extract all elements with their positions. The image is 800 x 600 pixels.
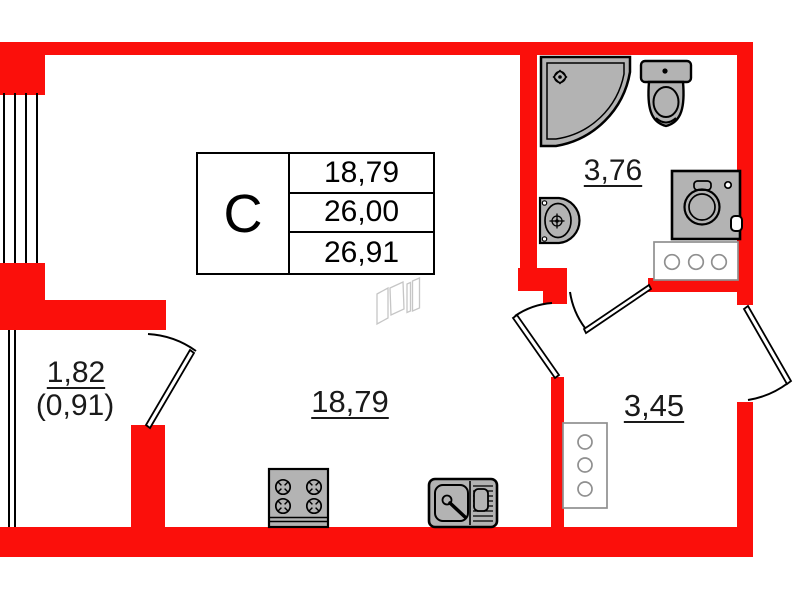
balcony-reduced-area-label: (0,91) <box>22 390 128 422</box>
flush-button <box>662 68 667 73</box>
stove <box>269 469 328 527</box>
wall-bathroom-left <box>520 55 537 270</box>
bathroom-door <box>570 285 651 333</box>
wall-top-left-block <box>0 42 45 95</box>
entrance-door <box>744 306 791 400</box>
door-leaf <box>513 315 559 378</box>
basin-screw <box>542 201 546 205</box>
door-swing-arc <box>515 303 552 316</box>
hallway-area-label: 3,45 <box>610 390 698 423</box>
unit-type-label: С <box>198 154 290 273</box>
door-leaf <box>744 306 791 384</box>
washer-counter <box>654 242 738 280</box>
unit-area-value: 26,00 <box>290 194 433 234</box>
door-leaf <box>584 285 651 333</box>
door-swing-arc <box>148 334 196 351</box>
washer-button <box>725 182 731 188</box>
wall-bathroom-jamb <box>518 268 567 291</box>
shower-tray <box>541 57 630 146</box>
washer-handle <box>731 216 742 231</box>
wall-bottom <box>0 527 753 557</box>
wall-bathroom-jamb-tab <box>543 291 567 304</box>
door-swing-arc <box>570 292 585 328</box>
floor-plan-drawing <box>0 0 800 600</box>
wall-left-mid-block <box>0 263 45 330</box>
balcony-door <box>146 334 196 428</box>
pik-watermark <box>377 278 420 324</box>
drainboard-tray <box>474 489 488 511</box>
hall-cabinet <box>563 423 607 508</box>
door-leaf <box>146 350 194 428</box>
stove-body <box>269 469 328 527</box>
unit-area-value: 26,91 <box>290 233 433 273</box>
wall-right-lower <box>737 402 753 527</box>
basin-screw <box>542 237 546 241</box>
kitchen-sink <box>429 479 497 527</box>
wash-basin <box>540 198 579 243</box>
balcony-area-label: 1,82 <box>30 357 122 389</box>
room-hall-door <box>513 303 559 378</box>
unit-info-table: С 18,79 26,00 26,91 <box>196 152 435 275</box>
bathroom-area-label: 3,76 <box>575 155 651 187</box>
floor-plan: С 18,79 26,00 26,91 3,76 18,79 3,45 1,82… <box>0 0 800 600</box>
washing-machine <box>672 171 742 239</box>
living-kitchen-area-label: 18,79 <box>296 386 404 419</box>
wall-balcony-pier <box>131 425 165 527</box>
unit-area-value: 18,79 <box>290 154 433 194</box>
toilet <box>641 61 691 126</box>
wall-balcony-arm <box>45 300 166 330</box>
shower <box>541 57 630 146</box>
wall-hallway-left <box>551 377 564 527</box>
wall-top <box>0 42 753 55</box>
door-swing-arc <box>748 383 788 400</box>
